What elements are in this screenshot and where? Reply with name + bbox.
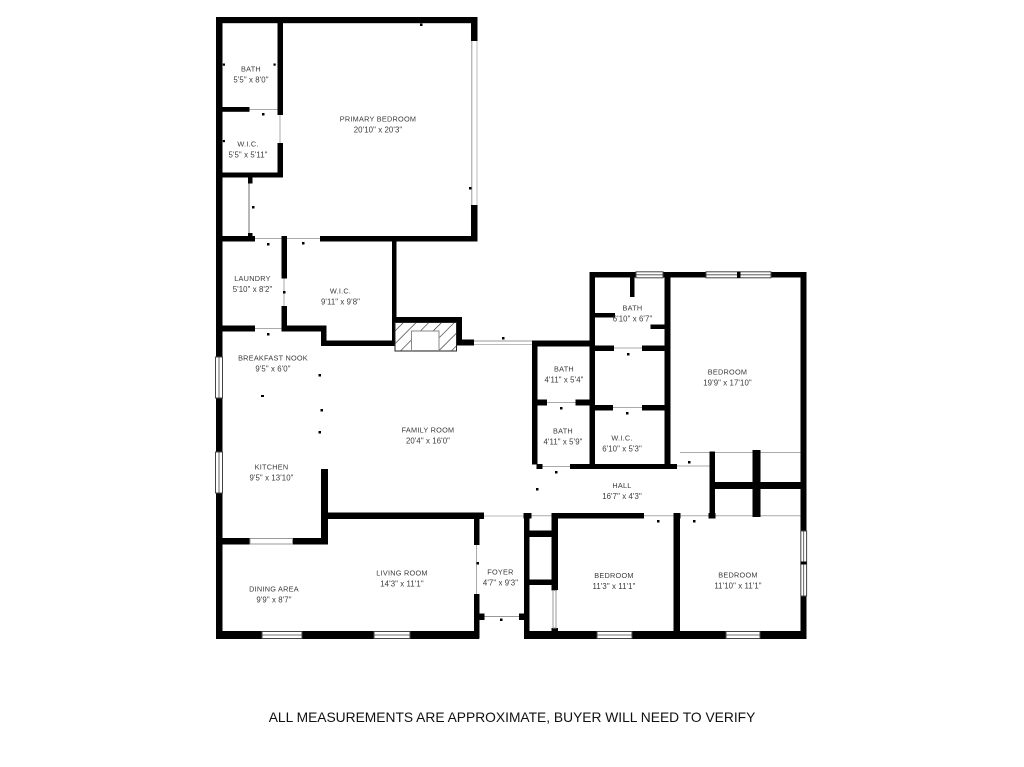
svg-text:FOYER: FOYER xyxy=(487,568,513,577)
svg-text:5'5" x 8'0": 5'5" x 8'0" xyxy=(233,76,268,85)
svg-text:BEDROOM: BEDROOM xyxy=(708,368,747,377)
svg-text:ALL MEASUREMENTS ARE APPROXIMA: ALL MEASUREMENTS ARE APPROXIMATE, BUYER … xyxy=(269,710,756,725)
svg-text:BATH: BATH xyxy=(554,365,574,374)
svg-text:BEDROOM: BEDROOM xyxy=(718,571,757,580)
svg-text:11'3" x 11'1": 11'3" x 11'1" xyxy=(593,582,636,591)
svg-text:6'10" x 5'3": 6'10" x 5'3" xyxy=(602,445,642,454)
svg-text:16'7" x 4'3": 16'7" x 4'3" xyxy=(602,492,642,501)
svg-text:9'11" x 9'8": 9'11" x 9'8" xyxy=(321,298,360,307)
svg-text:W.I.C.: W.I.C. xyxy=(237,140,258,149)
svg-text:4'11" x 5'9": 4'11" x 5'9" xyxy=(543,438,582,447)
svg-text:9'9" x 8'7": 9'9" x 8'7" xyxy=(256,596,291,605)
svg-text:11'10" x 11'1": 11'10" x 11'1" xyxy=(714,582,761,591)
svg-text:14'3" x 11'1": 14'3" x 11'1" xyxy=(380,580,424,589)
svg-text:5'10" x 8'2": 5'10" x 8'2" xyxy=(233,285,273,294)
svg-text:PRIMARY BEDROOM: PRIMARY BEDROOM xyxy=(340,115,416,124)
svg-text:20'10" x 20'3": 20'10" x 20'3" xyxy=(354,126,403,135)
svg-text:LAUNDRY: LAUNDRY xyxy=(234,274,271,283)
svg-text:FAMILY ROOM: FAMILY ROOM xyxy=(402,426,455,435)
svg-text:BATH: BATH xyxy=(623,304,643,313)
svg-text:4'7" x 9'3": 4'7" x 9'3" xyxy=(483,579,518,588)
svg-text:9'5" x 13'10": 9'5" x 13'10" xyxy=(249,474,293,483)
svg-text:W.I.C.: W.I.C. xyxy=(330,287,351,296)
svg-text:6'10" x 6'7": 6'10" x 6'7" xyxy=(613,315,653,324)
svg-text:LIVING ROOM: LIVING ROOM xyxy=(376,569,427,578)
svg-text:W.I.C.: W.I.C. xyxy=(611,434,632,443)
svg-text:KITCHEN: KITCHEN xyxy=(255,463,289,472)
svg-text:5'5" x 5'11": 5'5" x 5'11" xyxy=(228,151,267,160)
svg-text:HALL: HALL xyxy=(612,481,631,490)
svg-text:BEDROOM: BEDROOM xyxy=(594,571,633,580)
svg-text:20'4" x 16'0": 20'4" x 16'0" xyxy=(406,437,450,446)
svg-text:9'5" x 6'0": 9'5" x 6'0" xyxy=(255,365,290,374)
svg-text:4'11" x 5'4": 4'11" x 5'4" xyxy=(544,376,583,385)
svg-text:19'9" x 17'10": 19'9" x 17'10" xyxy=(703,379,752,388)
svg-text:BREAKFAST NOOK: BREAKFAST NOOK xyxy=(238,354,308,363)
svg-text:BATH: BATH xyxy=(553,427,573,436)
svg-text:BATH: BATH xyxy=(241,65,261,74)
svg-text:DINING AREA: DINING AREA xyxy=(249,585,299,594)
